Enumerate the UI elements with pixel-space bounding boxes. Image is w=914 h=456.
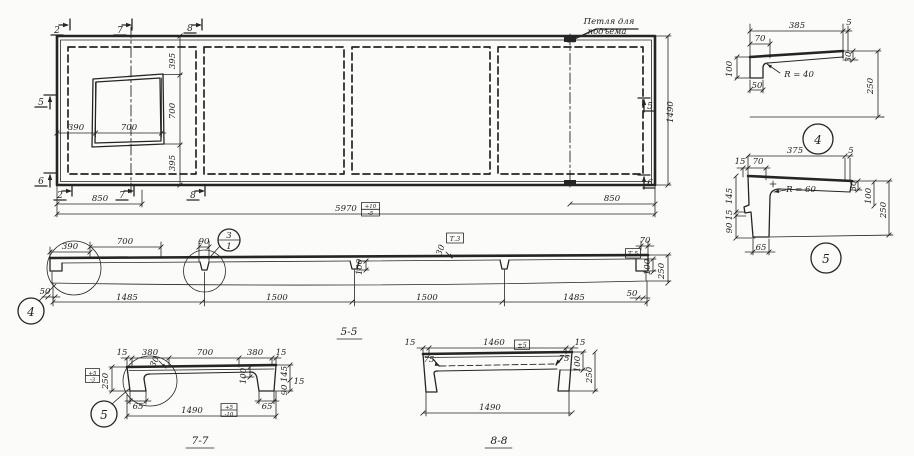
s55-box-t3-label: Т.3 xyxy=(450,235,461,243)
s77-dim-100: 100 xyxy=(239,367,249,384)
d4-radius-label: R = 40 xyxy=(783,70,814,80)
section-marker-7-bottom: 7 xyxy=(119,191,125,201)
section-marker-5-left: 5 xyxy=(38,98,44,108)
s77-callout-5-label: 5 xyxy=(100,408,108,422)
plan-view: 2 7 8 2 7 8 5 6 5 6 395 700 395 390 700 … xyxy=(35,17,676,217)
s88-title: 8-8 xyxy=(491,435,508,447)
s77-tol-1490-plus: +5 xyxy=(225,405,234,411)
dim-395-bottom: 395 xyxy=(168,155,178,171)
d4-dim-100: 100 xyxy=(725,60,735,77)
s55-box-t5-label: Т.5 xyxy=(628,250,639,258)
s55-dim-90: 90 xyxy=(199,237,210,247)
s88-dim-100: 100 xyxy=(573,355,583,372)
lifting-loop-label-line1: Петля для xyxy=(583,17,635,27)
section-marker-2-top: 2 xyxy=(53,26,60,36)
plan-opening-outline xyxy=(92,74,164,147)
s55-dim-70: 70 xyxy=(640,236,651,246)
d4-dim-50: 50 xyxy=(752,81,763,91)
s77-dim-250: 250 xyxy=(101,372,111,390)
s55-underside-lines xyxy=(52,259,646,285)
s77-dim-65-r: 65 xyxy=(262,402,273,412)
s88-dim-1460: 1460 xyxy=(483,338,505,348)
d5-dim-30: 30 xyxy=(849,180,859,191)
s55-dim-1485-r: 1485 xyxy=(563,293,585,303)
d5-dim-375: 375 xyxy=(787,146,803,156)
section-marker-7-top: 7 xyxy=(117,26,123,36)
plan-dimension-lines xyxy=(55,34,671,217)
s77-dim-15-r: 15 xyxy=(276,348,287,358)
s88-dim-75-l: 75 xyxy=(424,355,435,365)
lifting-loop-label-line2: подъема xyxy=(588,27,627,37)
panel-drawing: 2 7 8 2 7 8 5 6 5 6 395 700 395 390 700 … xyxy=(0,0,914,456)
dim-700-opening: 700 xyxy=(121,123,138,133)
d5-radius-center-mark xyxy=(770,181,776,187)
s55-dim-50-left: 50 xyxy=(40,287,51,297)
d4-label: 4 xyxy=(813,133,822,147)
s77-dim-15b: 15 xyxy=(294,377,305,387)
d5-dim-90: 90 xyxy=(725,222,735,233)
section-marker-8-bottom: 8 xyxy=(190,191,196,201)
tol-5970-minus: -5 xyxy=(368,211,374,217)
section-7-7: 15 380 700 380 15 30 +5 -3 250 100 145 1… xyxy=(86,348,305,448)
dim-5970: 5970 xyxy=(335,204,357,214)
s77-tol-250-plus: +5 xyxy=(88,371,97,377)
d4-dim-385: 385 xyxy=(789,21,805,31)
drawing-sheet: 2 7 8 2 7 8 5 6 5 6 395 700 395 390 700 … xyxy=(0,0,914,456)
s77-dim-65-l: 65 xyxy=(133,402,144,412)
d4-dim-250: 250 xyxy=(866,77,876,95)
s55-dim-100-rib: 100 xyxy=(355,258,365,275)
d5-dim-70: 70 xyxy=(753,157,764,167)
section-5-5: 390 700 90 3 1 1485 1500 1500 1485 50 50… xyxy=(18,229,671,339)
section-marker-5-right: 5 xyxy=(647,102,653,112)
d5-bottom-boundary xyxy=(769,235,893,237)
dim-850-right: 850 xyxy=(604,194,621,204)
d5-label: 5 xyxy=(822,252,830,266)
s77-dim-15-l: 15 xyxy=(117,348,128,358)
s77-dim-380-r: 380 xyxy=(247,348,264,358)
s77-dim-90: 90 xyxy=(280,384,290,395)
s88-dim-15-l: 15 xyxy=(405,338,416,348)
s88-top-surface xyxy=(423,352,572,354)
section-8-8: 15 1460 ±5 15 75 75 100 250 1490 8-8 xyxy=(405,338,598,448)
s55-title: 5-5 xyxy=(341,326,358,338)
s77-dim-700: 700 xyxy=(197,348,214,358)
dim-395-top: 395 xyxy=(168,53,178,69)
d4-top-surface xyxy=(750,51,843,57)
d4-dim-70: 70 xyxy=(755,34,766,44)
d5-dim-65: 65 xyxy=(756,243,767,253)
s55-dim-50-right: 50 xyxy=(627,289,638,299)
d5-dim-15b: 15 xyxy=(725,210,735,221)
s55-balloon-bottom: 1 xyxy=(226,242,231,252)
section-marker-2-bottom: 2 xyxy=(56,191,63,201)
s77-top-underline xyxy=(129,369,274,371)
dim-1490-plan: 1490 xyxy=(666,101,676,123)
section-marker-8-top: 8 xyxy=(187,24,193,34)
dim-390-opening: 390 xyxy=(68,123,85,133)
s77-tol-1490-minus: -10 xyxy=(225,412,234,418)
s88-dim-15-r: 15 xyxy=(575,338,586,348)
s88-dim-250: 250 xyxy=(585,366,595,384)
plan-outer-outline xyxy=(57,36,655,185)
plan-inner-outline xyxy=(61,40,652,182)
s88-hidden-line xyxy=(440,364,554,366)
section-marker-6-right: 6 xyxy=(647,179,653,189)
d5-dim-250: 250 xyxy=(879,201,889,219)
s77-title: 7-7 xyxy=(192,435,209,447)
s77-dim-380-l: 380 xyxy=(142,348,159,358)
d4-dim-30: 30 xyxy=(844,51,854,62)
dim-850-left: 850 xyxy=(92,194,109,204)
s55-dim-390: 390 xyxy=(62,242,79,252)
d4-underside xyxy=(768,57,843,63)
s55-balloon-top: 3 xyxy=(226,231,231,241)
s55-callout-4-label: 4 xyxy=(26,305,35,319)
d4-dim-5: 5 xyxy=(846,18,851,28)
s88-underside xyxy=(438,369,557,371)
s88-tol-1460-label: ±5 xyxy=(517,341,527,349)
dim-700-mid: 700 xyxy=(168,102,178,119)
d5-dim-5: 5 xyxy=(848,146,853,156)
d5-radius-label: R = 60 xyxy=(785,185,816,195)
s77-tol-250-minus: -3 xyxy=(90,378,96,384)
s77-underside xyxy=(150,372,253,374)
s88-top-underline xyxy=(425,356,570,358)
s77-dim-145: 145 xyxy=(280,366,290,382)
s55-top-flange xyxy=(50,255,648,258)
s88-dim-1490: 1490 xyxy=(479,403,501,413)
s55-dim-1485-l: 1485 xyxy=(116,293,138,303)
d5-dim-100: 100 xyxy=(864,187,874,204)
s55-dim-1500-r: 1500 xyxy=(416,293,438,303)
tol-5970-plus: +10 xyxy=(365,204,377,210)
s88-dim-75-r: 75 xyxy=(559,354,570,364)
s55-dim-700: 700 xyxy=(117,237,134,247)
s55-dim-250: 250 xyxy=(657,262,667,280)
d5-dim-145: 145 xyxy=(725,188,735,204)
detail-5: 375 5 15 70 145 15 90 65 30 100 250 R = … xyxy=(725,146,893,273)
s77-dim-1490: 1490 xyxy=(181,406,203,416)
plan-rib-dashed-panels xyxy=(68,47,643,174)
s55-dim-1500-l: 1500 xyxy=(266,293,288,303)
d5-top-surface xyxy=(748,176,852,181)
s88-profile-outline xyxy=(423,352,572,392)
section-marker-6-left: 6 xyxy=(38,177,44,187)
d5-dim-15: 15 xyxy=(735,157,746,167)
s55-dim-100-right: 100 xyxy=(643,258,653,275)
detail-4: 385 5 70 100 50 30 250 R = 40 4 xyxy=(725,18,884,154)
